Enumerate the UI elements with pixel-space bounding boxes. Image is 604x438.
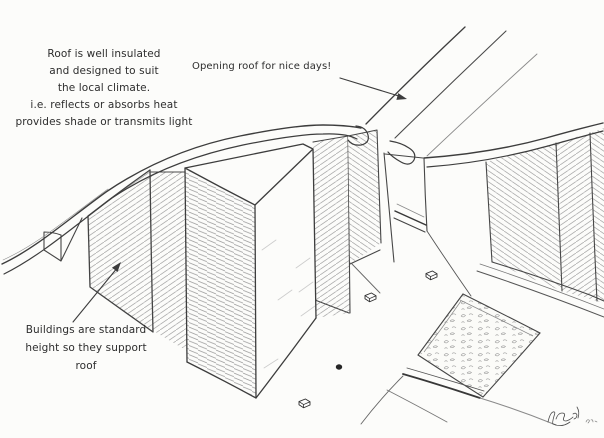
building-mid-slab: [313, 136, 350, 318]
opening-roof-panel: [366, 27, 537, 156]
building-left-slab: [88, 170, 153, 332]
building-mid-slab-2: [348, 130, 381, 293]
annotation-roof-insulation: Roof is well insulated and designed to s…: [4, 46, 204, 131]
bench: [299, 399, 310, 408]
sketch-page: Roof is well insulated and designed to s…: [0, 0, 604, 438]
annotation-opening-roof: Opening roof for nice days!: [192, 61, 331, 72]
building-right-block: [486, 128, 604, 303]
building-tower: [185, 144, 316, 398]
artist-signature: [548, 407, 597, 426]
bench: [426, 271, 437, 280]
opening-roof-arrow: [340, 78, 407, 100]
annotation-buildings-height: Buildings are standard height so they su…: [6, 321, 166, 375]
garden-square: [418, 294, 540, 397]
bench: [365, 293, 376, 302]
person-figure: [336, 364, 342, 369]
